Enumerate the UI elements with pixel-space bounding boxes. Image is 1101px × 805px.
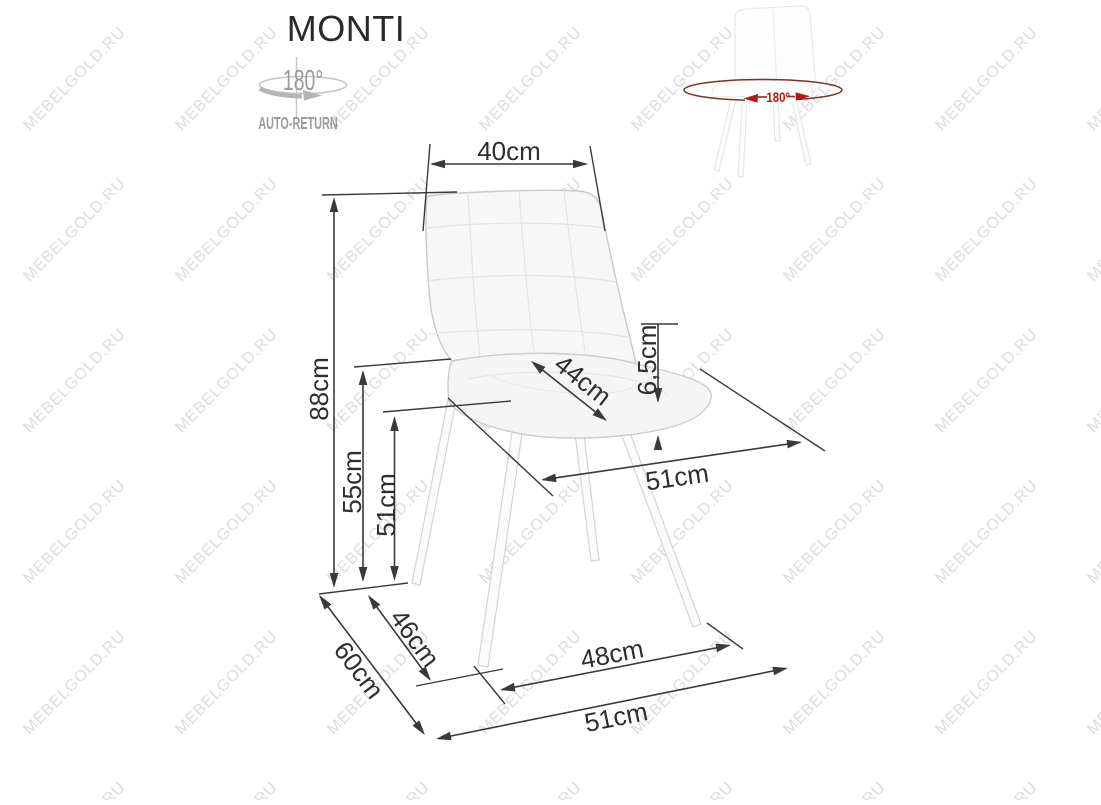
- svg-text:51cm: 51cm: [371, 473, 401, 537]
- svg-text:55cm: 55cm: [337, 450, 367, 514]
- svg-text:AUTO-RETURN: AUTO-RETURN: [258, 115, 337, 134]
- svg-text:180º: 180º: [766, 89, 790, 105]
- svg-text:180°: 180°: [283, 65, 323, 97]
- svg-text:88cm: 88cm: [304, 357, 334, 421]
- svg-text:MONTI: MONTI: [287, 8, 405, 49]
- svg-text:6,5cm: 6,5cm: [632, 325, 662, 396]
- svg-text:40cm: 40cm: [477, 136, 541, 166]
